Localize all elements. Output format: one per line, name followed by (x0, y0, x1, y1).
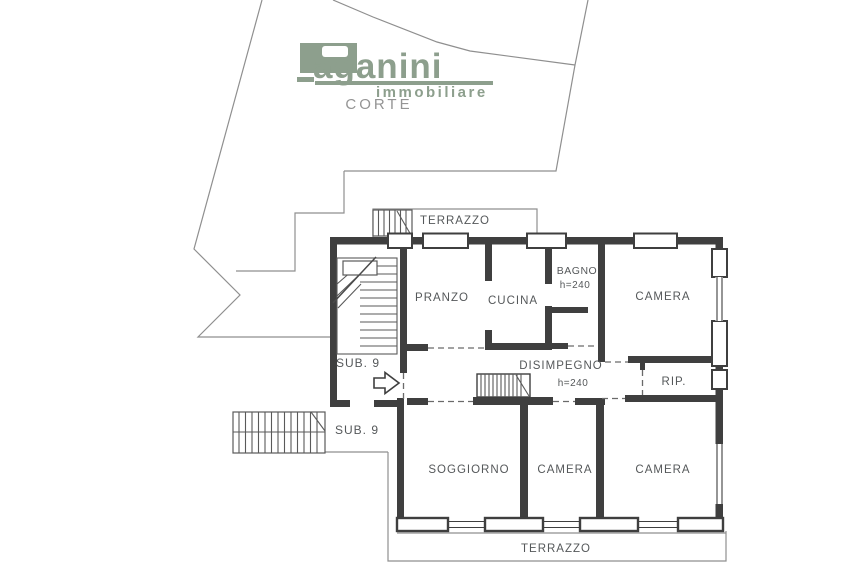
label-sub9-lower: SUB. 9 (335, 423, 379, 437)
label-bagno: BAGNO (557, 265, 597, 277)
label-rip: RIP. (662, 376, 687, 388)
label-terrazzo-top: TERRAZZO (420, 215, 490, 227)
terrace-top-stairs-hatch (373, 210, 412, 236)
stairwell-stairs (333, 257, 397, 354)
label-camera-bottom-right: CAMERA (635, 464, 690, 476)
logo-initial: P (300, 43, 301, 44)
floorplan-page: CORTE TERRAZZO PRANZO CUCINA BAGNO h=240… (0, 0, 850, 570)
label-bagno-height: h=240 (560, 280, 591, 291)
label-cucina: CUCINA (488, 295, 538, 307)
label-disimpegno-height: h=240 (558, 378, 589, 389)
entrance-arrow-icon (374, 373, 399, 394)
logo-p-underline (297, 77, 314, 82)
logo-name: aganini (313, 49, 443, 84)
label-sub9-stairwell: SUB. 9 (336, 356, 380, 370)
label-camera-top-right: CAMERA (635, 291, 690, 303)
label-pranzo: PRANZO (415, 292, 469, 304)
terrace-lower-left-stairs-hatch (233, 412, 325, 453)
corridor-stairs-hatch (477, 374, 530, 397)
label-terrazzo-bottom: TERRAZZO (521, 543, 591, 555)
label-camera-bottom-middle: CAMERA (537, 464, 592, 476)
logo-subtitle: immobiliare (376, 84, 488, 101)
label-soggiorno: SOGGIORNO (428, 464, 509, 476)
label-disimpegno: DISIMPEGNO (519, 360, 602, 372)
